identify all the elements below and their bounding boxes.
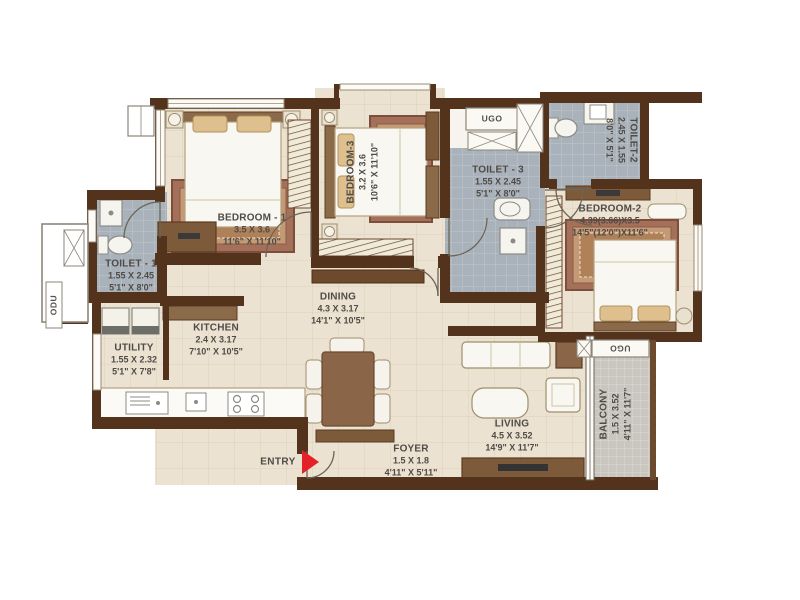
living-furniture xyxy=(462,342,584,478)
duct-label-ugo-balcony: UGO xyxy=(610,342,631,353)
room-label-bedroom3: BEDROOM-3 3.2 X 3.6 10'6" X 11'10" xyxy=(345,141,382,204)
room-label-utility: UTILITY 1.55 X 2.32 5'1" X 7'8" xyxy=(111,342,157,379)
duct-label-ugo-top: UGO xyxy=(482,113,503,124)
room-label-bedroom2: BEDROOM-2 4.39(3.66)X3.5 14'5"(12'0")X11… xyxy=(572,203,648,240)
room-label-kitchen: KITCHEN 2.4 X 3.17 7'10" X 10'5" xyxy=(189,322,243,359)
entry-label: ENTRY xyxy=(260,455,296,468)
duct-label-odu: ODU xyxy=(48,295,59,315)
floor-plan: BEDROOM - 1 3.5 X 3.6 11'6" X 11'10" BED… xyxy=(0,0,800,600)
room-label-toilet1: TOILET - 1 1.55 X 2.45 5'1" X 8'0" xyxy=(105,258,157,295)
room-label-balcony: BALCONY 1.5 X 3.52 4'11" X 11'7" xyxy=(598,388,635,441)
room-label-toilet3: TOILET - 3 1.55 X 2.45 5'1" X 8'0" xyxy=(472,164,524,201)
floor-plan-drawing xyxy=(0,0,800,600)
room-label-foyer: FOYER 1.5 X 1.8 4'11" X 5'11" xyxy=(385,443,438,480)
room-label-bedroom1: BEDROOM - 1 3.5 X 3.6 11'6" X 11'10" xyxy=(218,212,287,249)
room-label-living: LIVING 4.5 X 3.52 14'9" X 11'7" xyxy=(485,418,538,455)
room-label-dining: DINING 4.3 X 3.17 14'1" X 10'5" xyxy=(311,291,365,328)
room-label-toilet2: TOILET-2 2.45 X 1.55 8'0" X 5'1" xyxy=(603,117,640,163)
